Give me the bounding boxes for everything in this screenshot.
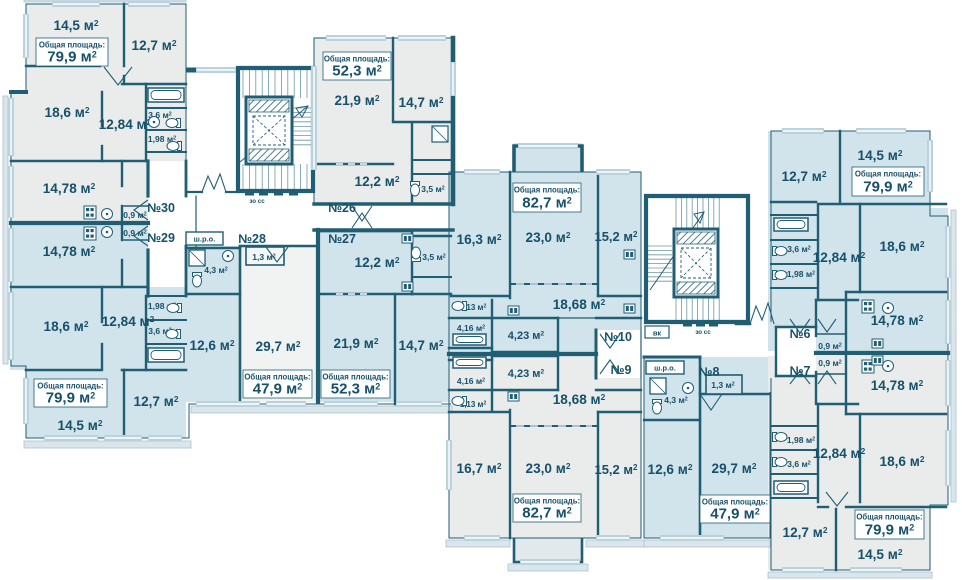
svg-text:14,7 м2: 14,7 м2 bbox=[399, 338, 444, 353]
svg-text:14,7 м2: 14,7 м2 bbox=[399, 95, 444, 110]
svg-text:14,5 м2: 14,5 м2 bbox=[858, 547, 903, 562]
svg-text:29,7 м2: 29,7 м2 bbox=[256, 339, 301, 354]
svg-text:4,3 м2: 4,3 м2 bbox=[664, 395, 687, 405]
svg-text:вк: вк bbox=[653, 329, 662, 338]
svg-text:14,78 м2: 14,78 м2 bbox=[43, 244, 96, 259]
svg-text:23,0 м2: 23,0 м2 bbox=[526, 230, 571, 245]
svg-text:Общая площадь:: Общая площадь: bbox=[855, 170, 921, 179]
svg-text:18,6 м2: 18,6 м2 bbox=[880, 239, 925, 254]
svg-text:16,3 м2: 16,3 м2 bbox=[457, 232, 502, 247]
svg-text:ш.р.о.: ш.р.о. bbox=[654, 364, 676, 373]
svg-text:52,3 м2: 52,3 м2 bbox=[332, 63, 381, 80]
svg-text:Общая площадь:: Общая площадь: bbox=[856, 513, 922, 522]
svg-text:1,98 м2: 1,98 м2 bbox=[787, 435, 815, 445]
svg-text:4,16 м2: 4,16 м2 bbox=[457, 323, 485, 333]
svg-text:4,23 м2: 4,23 м2 bbox=[508, 368, 545, 380]
svg-text:№6: №6 bbox=[790, 327, 811, 341]
svg-text:12,7 м2: 12,7 м2 bbox=[783, 525, 828, 540]
svg-text:№28: №28 bbox=[238, 232, 266, 246]
svg-text:Общая площадь:: Общая площадь: bbox=[514, 186, 580, 195]
svg-text:21,9 м2: 21,9 м2 bbox=[334, 336, 379, 351]
svg-text:ш.р.о.: ш.р.о. bbox=[194, 235, 216, 244]
svg-text:3,6 м2: 3,6 м2 bbox=[787, 244, 810, 254]
svg-text:3,5 м2: 3,5 м2 bbox=[421, 184, 444, 194]
svg-text:23,0 м2: 23,0 м2 bbox=[526, 461, 571, 476]
svg-text:№10: №10 bbox=[604, 330, 632, 344]
svg-text:14,78 м2: 14,78 м2 bbox=[43, 181, 96, 196]
svg-text:№8: №8 bbox=[699, 365, 720, 379]
svg-text:14,78 м2: 14,78 м2 bbox=[871, 378, 924, 393]
svg-text:зо сс: зо сс bbox=[249, 198, 265, 205]
svg-text:14,5 м2: 14,5 м2 bbox=[54, 18, 99, 33]
svg-text:1,98 м2: 1,98 м2 bbox=[787, 269, 815, 279]
svg-text:№9: №9 bbox=[611, 363, 632, 377]
svg-text:79,9 м2: 79,9 м2 bbox=[46, 390, 95, 407]
svg-text:15,2 м2: 15,2 м2 bbox=[594, 462, 638, 477]
svg-text:18,6 м2: 18,6 м2 bbox=[880, 454, 925, 469]
svg-text:47,9 м2: 47,9 м2 bbox=[253, 381, 302, 398]
svg-text:12,7 м2: 12,7 м2 bbox=[132, 38, 177, 53]
svg-text:12,6 м2: 12,6 м2 bbox=[648, 462, 693, 477]
svg-text:№30: №30 bbox=[147, 201, 175, 215]
svg-text:47,9 м2: 47,9 м2 bbox=[710, 506, 759, 523]
svg-text:52,3 м2: 52,3 м2 bbox=[331, 381, 380, 398]
svg-text:0,9 м2: 0,9 м2 bbox=[123, 228, 146, 238]
svg-text:14,78 м2: 14,78 м2 bbox=[871, 313, 924, 328]
svg-text:12,6 м2: 12,6 м2 bbox=[190, 338, 235, 353]
svg-text:29,7 м2: 29,7 м2 bbox=[712, 461, 757, 476]
svg-text:№27: №27 bbox=[328, 232, 356, 246]
svg-text:0,9 м2: 0,9 м2 bbox=[818, 358, 841, 368]
svg-text:4,3 м2: 4,3 м2 bbox=[204, 265, 227, 275]
svg-text:0,9 м2: 0,9 м2 bbox=[818, 341, 841, 351]
svg-text:21,9 м2: 21,9 м2 bbox=[335, 93, 380, 108]
svg-text:79,9 м2: 79,9 м2 bbox=[865, 522, 914, 539]
svg-text:12,2 м2: 12,2 м2 bbox=[355, 174, 400, 189]
svg-text:0,9 м2: 0,9 м2 bbox=[123, 210, 146, 220]
svg-text:12,7 м2: 12,7 м2 bbox=[782, 169, 827, 184]
svg-text:1,3 м2: 1,3 м2 bbox=[252, 252, 275, 262]
svg-text:14,5 м2: 14,5 м2 bbox=[58, 418, 103, 433]
svg-text:15,2 м2: 15,2 м2 bbox=[594, 229, 638, 244]
svg-text:18,68 м2: 18,68 м2 bbox=[553, 297, 606, 312]
svg-text:16,7 м2: 16,7 м2 bbox=[457, 461, 502, 476]
svg-text:3,5 м2: 3,5 м2 bbox=[422, 252, 445, 262]
svg-text:12,7 м2: 12,7 м2 bbox=[134, 394, 179, 409]
svg-text:№29: №29 bbox=[147, 231, 175, 245]
svg-text:18,68 м2: 18,68 м2 bbox=[553, 392, 606, 407]
svg-text:зо сс: зо сс bbox=[695, 329, 711, 336]
svg-text:82,7 м2: 82,7 м2 bbox=[522, 195, 571, 212]
svg-text:4,16 м2: 4,16 м2 bbox=[457, 376, 485, 386]
svg-text:4,23 м2: 4,23 м2 bbox=[508, 330, 545, 342]
svg-text:1,3 м2: 1,3 м2 bbox=[711, 380, 734, 390]
svg-text:12,84 м2: 12,84 м2 bbox=[813, 446, 866, 461]
svg-text:12,84 м2: 12,84 м2 bbox=[813, 250, 866, 265]
svg-text:82,7 м2: 82,7 м2 bbox=[522, 505, 571, 522]
svg-text:79,9 м2: 79,9 м2 bbox=[863, 179, 912, 196]
svg-text:18,6 м2: 18,6 м2 bbox=[44, 319, 89, 334]
svg-text:12,2 м2: 12,2 м2 bbox=[355, 255, 400, 270]
svg-text:№7: №7 bbox=[790, 364, 811, 378]
svg-text:79,9 м2: 79,9 м2 bbox=[47, 49, 96, 66]
svg-text:12,84 м2: 12,84 м2 bbox=[99, 117, 152, 132]
svg-text:14,5 м2: 14,5 м2 bbox=[858, 148, 903, 163]
svg-text:№26: №26 bbox=[328, 201, 356, 215]
svg-text:12,84 м2: 12,84 м2 bbox=[102, 314, 155, 329]
svg-text:3,6 м2: 3,6 м2 bbox=[787, 459, 810, 469]
svg-text:18,6 м2: 18,6 м2 bbox=[45, 105, 90, 120]
